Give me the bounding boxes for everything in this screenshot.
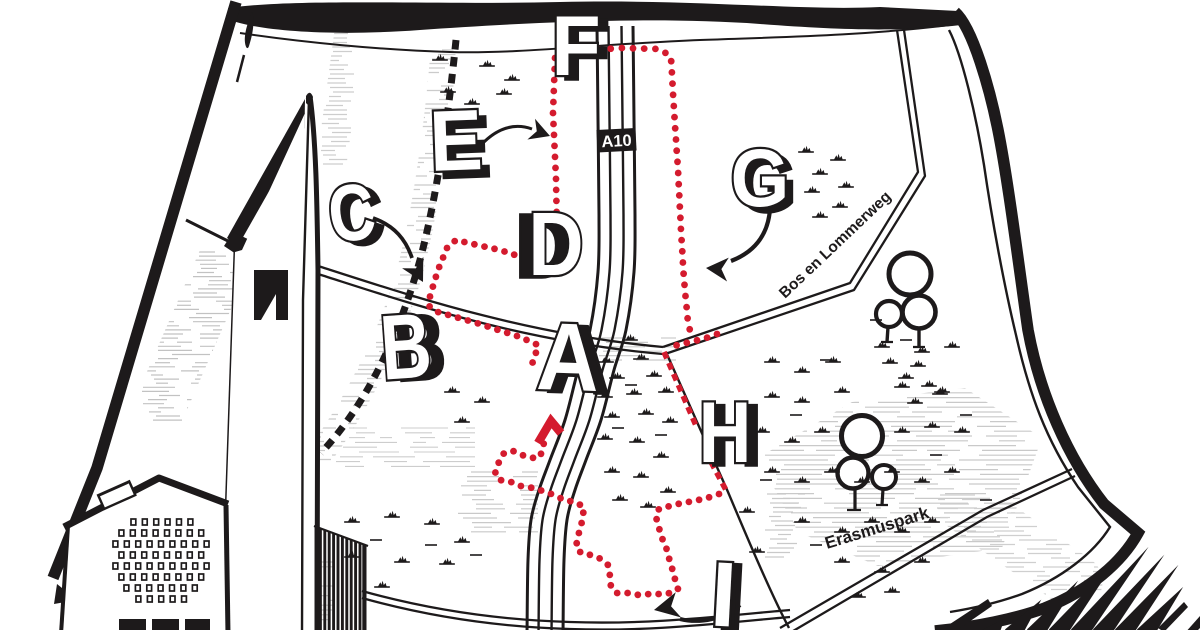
svg-text:I: I (708, 543, 739, 630)
svg-text:A10: A10 (601, 132, 632, 152)
svg-text:B: B (377, 294, 435, 400)
svg-text:A: A (535, 303, 601, 412)
svg-text:F: F (551, 0, 600, 93)
svg-text:E: E (428, 91, 484, 190)
svg-text:H: H (699, 384, 752, 480)
svg-text:D: D (528, 193, 583, 294)
svg-text:G: G (731, 132, 790, 224)
